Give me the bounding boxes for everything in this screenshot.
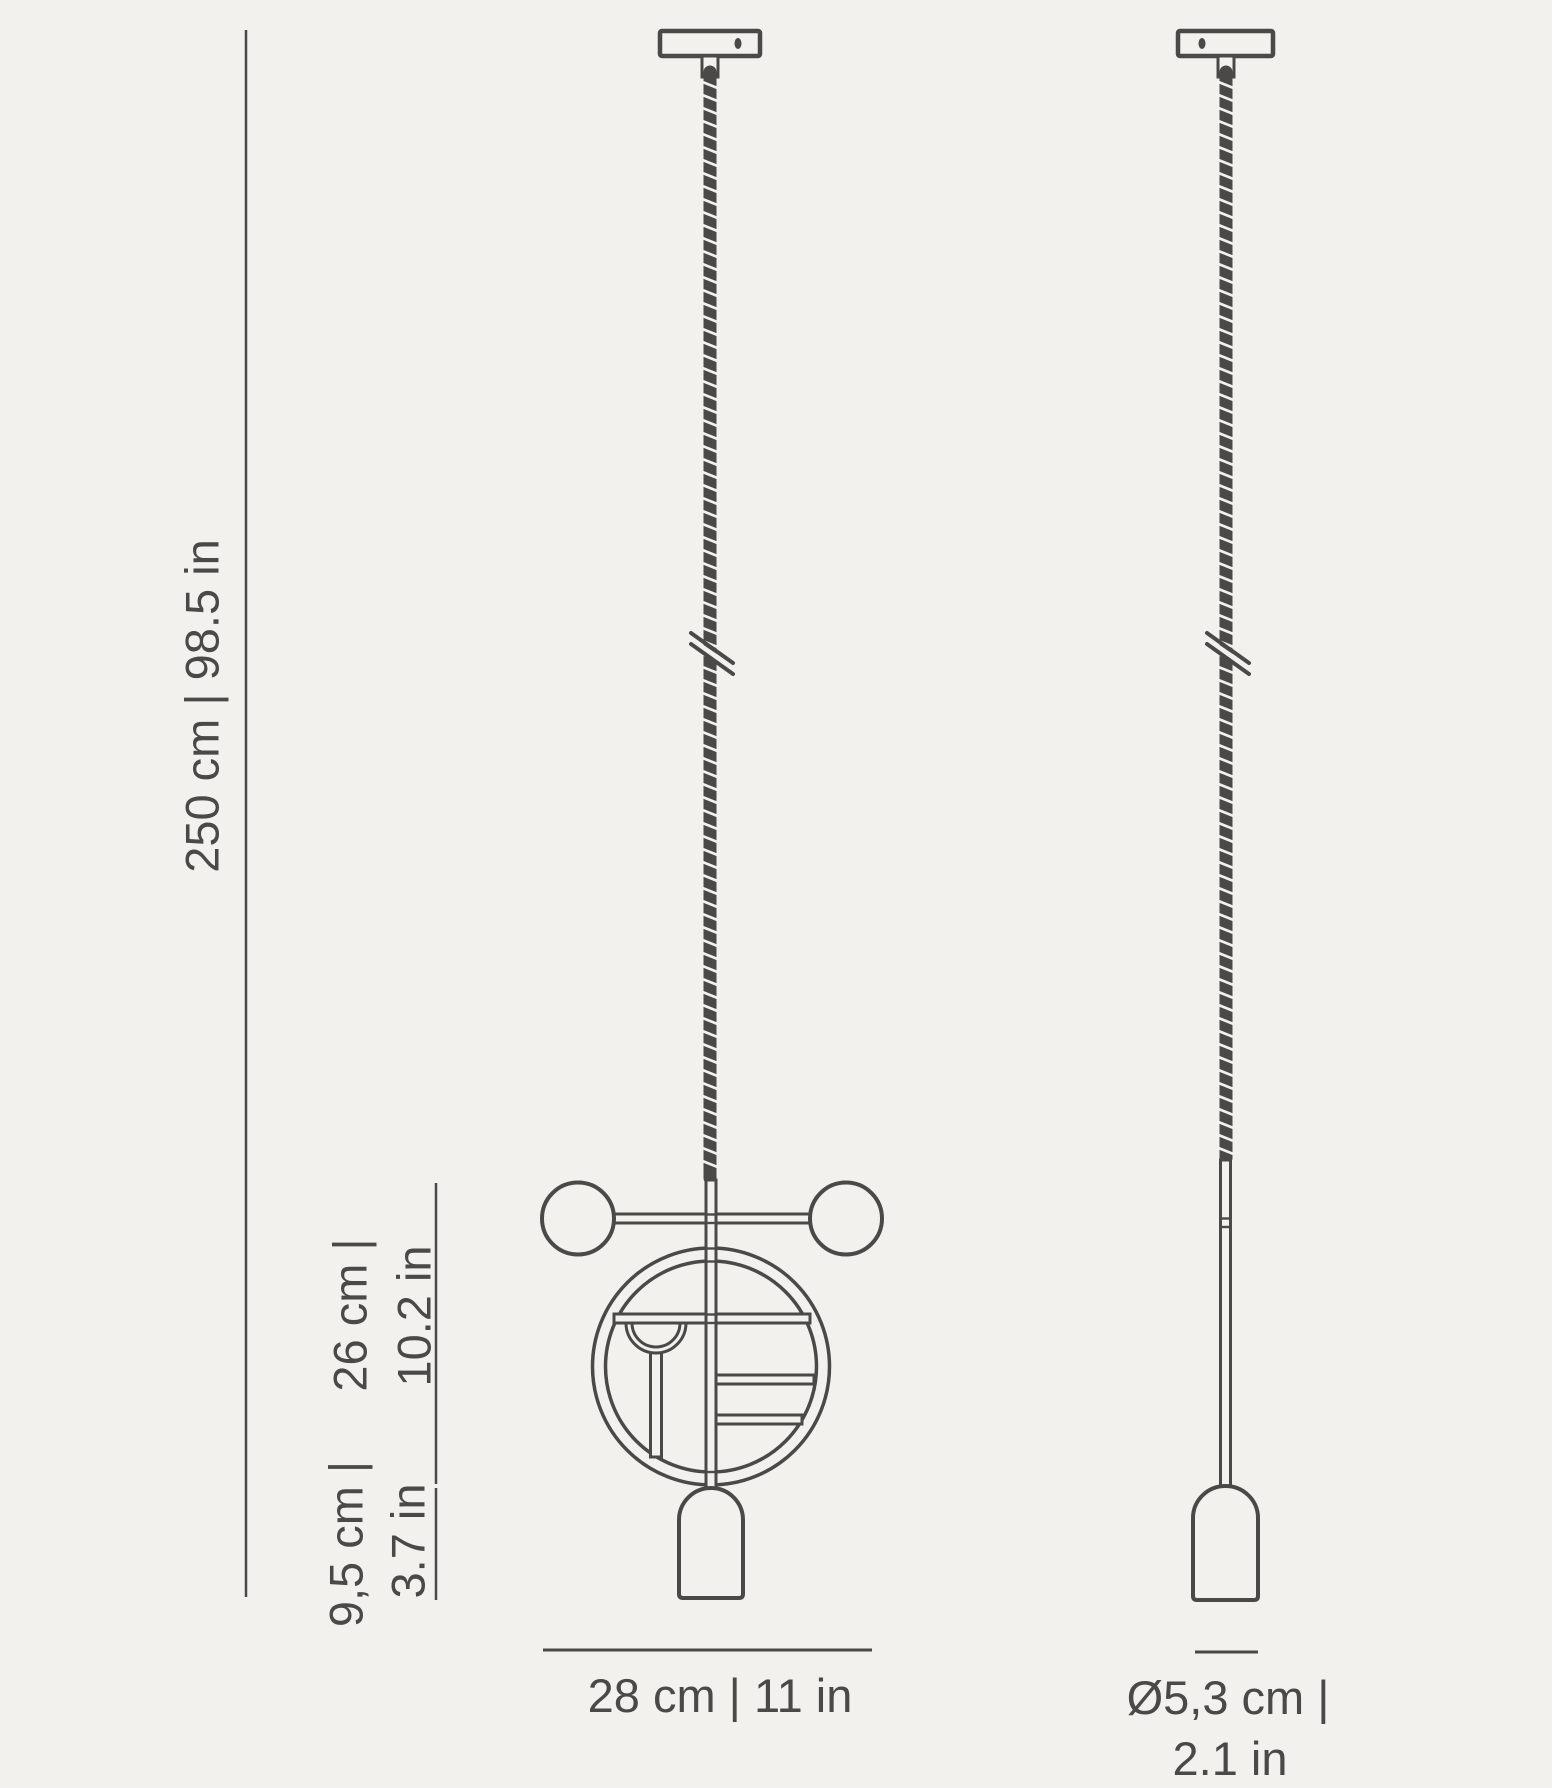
power-cord-side [1219,72,1234,1158]
dimension-diffuser-height: 9,5 cm | 3.7 in [319,1461,436,1627]
fixture-width-label: 28 cm | 11 in [588,1669,853,1722]
lamp-diffuser-side [1193,1486,1258,1600]
dimension-diffuser-diameter: Ø5,3 cm | 2.1 in [1127,1652,1330,1785]
canopy-screw-hole-side [1199,38,1206,49]
ceiling-canopy [660,31,760,56]
lamp-diffuser-front [679,1488,743,1598]
front-view-drawing [542,31,882,1598]
ring-shelf-bar-upper [714,1375,814,1384]
diffuser-diameter-in-label: 2.1 in [1173,1732,1288,1785]
side-view-drawing [1178,31,1273,1600]
center-rod-side [1221,1160,1231,1490]
dimension-overall-drop: 250 cm | 98.5 in [175,30,246,1597]
pendant-lamp-dimension-drawing: 250 cm | 98.5 in 26 cm | 10.2 in 9,5 cm … [0,0,1552,1788]
ring-shelf-bar-lower [714,1415,802,1424]
sphere-ornament-right [810,1183,882,1255]
power-cord-front [703,72,718,1178]
dimension-fixture-height: 26 cm | 10.2 in [323,1183,440,1484]
center-rod [706,1180,716,1488]
ceiling-canopy-side [1178,31,1273,56]
diffuser-diameter-cm-label: Ø5,3 cm | [1127,1671,1330,1724]
diffuser-height-in-label: 3.7 in [381,1484,434,1599]
sphere-ornament-left [542,1183,614,1255]
fixture-height-in-label: 10.2 in [387,1245,440,1386]
glass-ornament-bowl [626,1323,686,1353]
dimension-fixture-width: 28 cm | 11 in [543,1650,872,1722]
fixture-height-cm-label: 26 cm | [323,1238,376,1391]
canopy-screw-hole [735,38,742,49]
diffuser-height-cm-label: 9,5 cm | [319,1461,372,1627]
glass-ornament-stem [651,1351,662,1457]
overall-drop-label: 250 cm | 98.5 in [175,539,228,873]
